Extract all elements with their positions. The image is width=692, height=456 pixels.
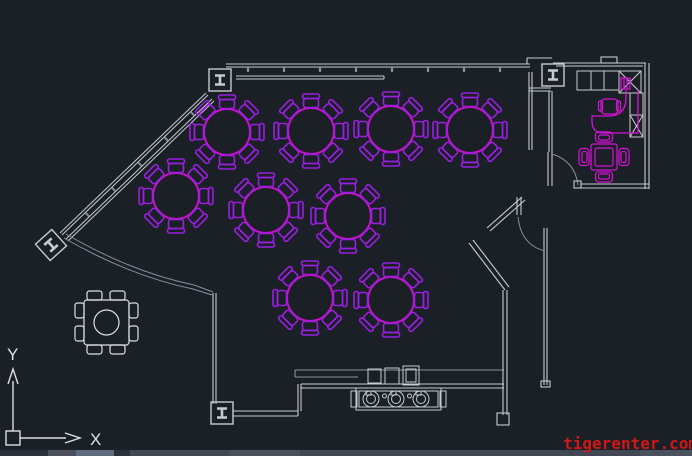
chair bbox=[195, 143, 217, 165]
chair bbox=[168, 159, 185, 173]
round-table[interactable] bbox=[354, 92, 428, 166]
chair bbox=[359, 97, 381, 119]
chair bbox=[274, 123, 288, 140]
chair bbox=[481, 141, 503, 163]
chair bbox=[340, 179, 357, 193]
chair bbox=[462, 93, 479, 107]
right-corridor-walls[interactable] bbox=[487, 58, 552, 387]
chair bbox=[234, 221, 256, 243]
chair bbox=[335, 123, 349, 140]
column-top-right[interactable] bbox=[542, 64, 564, 86]
chair bbox=[372, 208, 386, 225]
column-left[interactable] bbox=[35, 229, 66, 260]
chair bbox=[144, 207, 166, 229]
chair bbox=[359, 268, 381, 290]
chair bbox=[383, 324, 400, 338]
kitchen-walls[interactable] bbox=[295, 240, 509, 425]
chair bbox=[415, 292, 429, 309]
chair bbox=[402, 268, 424, 290]
round-table[interactable] bbox=[273, 261, 347, 335]
column-top-left[interactable] bbox=[209, 69, 231, 91]
chair bbox=[290, 202, 304, 219]
chair bbox=[251, 124, 265, 141]
chair bbox=[219, 95, 236, 109]
chair bbox=[168, 220, 185, 234]
chair bbox=[303, 155, 320, 169]
ucs-origin-box bbox=[6, 431, 20, 445]
chair bbox=[238, 100, 260, 122]
office-desk-chair[interactable] bbox=[599, 99, 621, 114]
office-cabinets[interactable] bbox=[577, 71, 643, 137]
chair bbox=[316, 227, 338, 249]
round-table[interactable] bbox=[274, 94, 348, 168]
buffet-counter[interactable] bbox=[351, 366, 446, 410]
chair bbox=[433, 122, 447, 139]
chair bbox=[359, 184, 381, 206]
chair bbox=[322, 99, 344, 121]
chair bbox=[302, 261, 319, 275]
chair bbox=[359, 227, 381, 249]
chair bbox=[279, 142, 301, 164]
round-table[interactable] bbox=[354, 263, 428, 337]
chair bbox=[279, 99, 301, 121]
chair bbox=[302, 322, 319, 336]
watermark-text: tigerenter.com bbox=[563, 434, 692, 453]
banquet-tables-layer[interactable] bbox=[139, 92, 507, 337]
chair bbox=[278, 309, 300, 331]
cad-model-space[interactable]: Y X tigerenter.com bbox=[0, 0, 692, 456]
chair bbox=[200, 188, 214, 205]
chair bbox=[258, 173, 275, 187]
curved-wall[interactable] bbox=[64, 234, 213, 295]
chair bbox=[234, 178, 256, 200]
chair bbox=[258, 234, 275, 248]
chair bbox=[144, 164, 166, 186]
chair bbox=[359, 311, 381, 333]
chair bbox=[321, 309, 343, 331]
ucs-icon bbox=[6, 369, 80, 445]
chair bbox=[383, 92, 400, 106]
round-table[interactable] bbox=[311, 179, 385, 253]
chair bbox=[190, 124, 204, 141]
round-table[interactable] bbox=[190, 95, 264, 169]
chair bbox=[415, 121, 429, 138]
office-square-table-set[interactable] bbox=[579, 132, 629, 182]
chair bbox=[354, 292, 368, 309]
chair bbox=[438, 141, 460, 163]
chair bbox=[278, 266, 300, 288]
ucs-x-label: X bbox=[90, 430, 101, 449]
top-window-wall[interactable] bbox=[226, 64, 530, 79]
chair bbox=[139, 188, 153, 205]
chair bbox=[340, 240, 357, 254]
chair bbox=[219, 156, 236, 170]
chair bbox=[402, 311, 424, 333]
round-table[interactable] bbox=[433, 93, 507, 167]
chair bbox=[354, 121, 368, 138]
chair bbox=[277, 221, 299, 243]
chair bbox=[238, 143, 260, 165]
chair bbox=[187, 207, 209, 229]
ucs-y-label: Y bbox=[7, 345, 18, 364]
column-bottom[interactable] bbox=[211, 402, 233, 424]
chair bbox=[402, 140, 424, 162]
lower-door[interactable] bbox=[518, 217, 545, 251]
chair bbox=[311, 208, 325, 225]
chair bbox=[402, 97, 424, 119]
round-table[interactable] bbox=[139, 159, 213, 233]
chair bbox=[229, 202, 243, 219]
chair bbox=[277, 178, 299, 200]
lower-left-wall[interactable] bbox=[213, 293, 301, 416]
office-door[interactable] bbox=[548, 152, 581, 188]
chair bbox=[494, 122, 508, 139]
chair bbox=[322, 142, 344, 164]
chair bbox=[187, 164, 209, 186]
chair bbox=[383, 263, 400, 277]
chair bbox=[334, 290, 348, 307]
chair bbox=[383, 153, 400, 167]
chair bbox=[359, 140, 381, 162]
round-table[interactable] bbox=[229, 173, 303, 247]
terrace-square-table[interactable] bbox=[75, 291, 138, 354]
chair bbox=[462, 154, 479, 168]
chair bbox=[321, 266, 343, 288]
chair bbox=[481, 98, 503, 120]
chair bbox=[303, 94, 320, 108]
chair bbox=[438, 98, 460, 120]
chair bbox=[316, 184, 338, 206]
chair bbox=[273, 290, 287, 307]
chair bbox=[195, 100, 217, 122]
diagonal-window-wall[interactable] bbox=[60, 93, 214, 241]
counter-burners[interactable] bbox=[363, 391, 429, 407]
